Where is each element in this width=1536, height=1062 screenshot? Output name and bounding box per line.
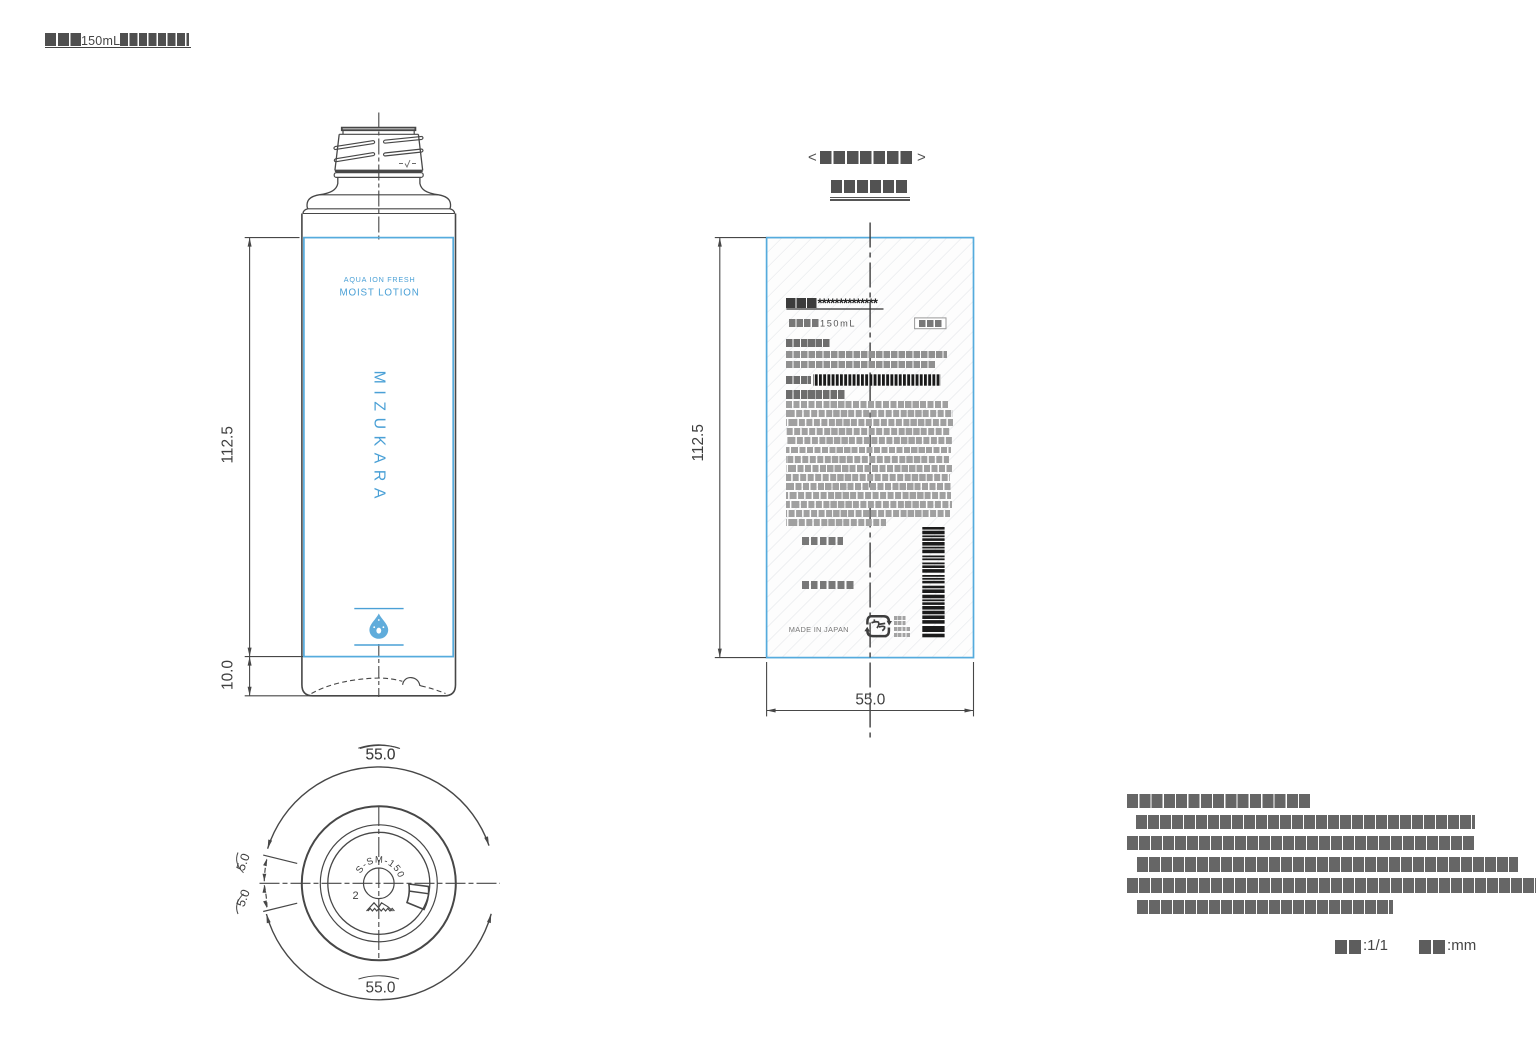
svg-text:55.0: 55.0 bbox=[855, 691, 885, 708]
svg-text:150mL: 150mL bbox=[820, 319, 856, 329]
svg-text:MIZUKARA: MIZUKARA bbox=[371, 371, 388, 505]
svg-text:5.0: 5.0 bbox=[234, 852, 253, 873]
svg-text:5.0: 5.0 bbox=[234, 888, 253, 909]
svg-text:S-SM-150: S-SM-150 bbox=[354, 855, 407, 880]
svg-text:112.5: 112.5 bbox=[690, 424, 707, 461]
svg-text:112.5: 112.5 bbox=[219, 426, 236, 463]
svg-text:55.0: 55.0 bbox=[366, 747, 396, 764]
svg-text:2: 2 bbox=[352, 890, 358, 902]
svg-text:10.0: 10.0 bbox=[219, 660, 236, 690]
svg-text:MOIST LOTION: MOIST LOTION bbox=[339, 287, 419, 298]
svg-text:55.0: 55.0 bbox=[366, 980, 396, 997]
svg-text:MADE IN JAPAN: MADE IN JAPAN bbox=[789, 625, 849, 634]
svg-text:AQUA ION FRESH: AQUA ION FRESH bbox=[344, 275, 416, 284]
